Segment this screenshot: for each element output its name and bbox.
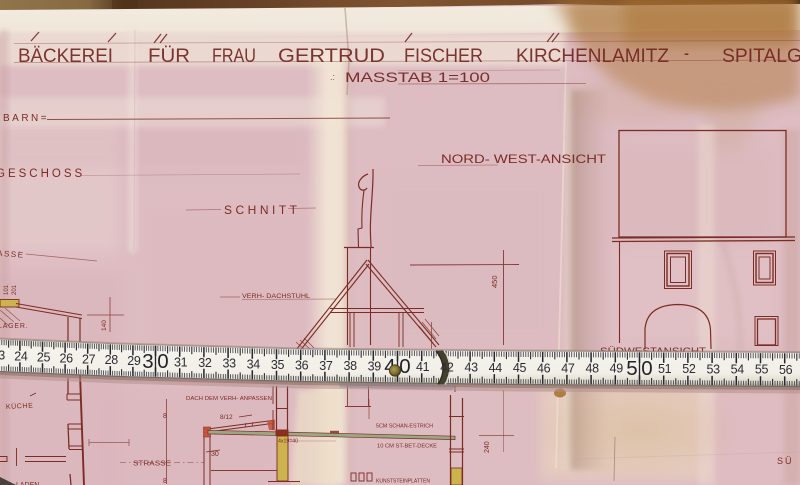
- svg-text:35: 35: [271, 358, 285, 372]
- svg-text:37: 37: [319, 359, 333, 373]
- svg-text:24: 24: [14, 350, 28, 364]
- svg-text:0: 0: [399, 355, 410, 378]
- svg-text:52: 52: [682, 362, 696, 376]
- svg-text:34: 34: [247, 357, 261, 371]
- svg-text:SPITALG: SPITALG: [722, 44, 800, 66]
- svg-text:8: 8: [163, 413, 167, 420]
- svg-text:47: 47: [561, 361, 575, 375]
- svg-text:36: 36: [295, 359, 309, 373]
- svg-text:8: 8: [163, 478, 167, 485]
- svg-text:MASSTAB 1=100: MASSTAB 1=100: [345, 70, 490, 85]
- svg-text:39: 39: [368, 360, 382, 374]
- svg-text:43: 43: [464, 361, 478, 375]
- svg-text:25: 25: [37, 350, 51, 364]
- svg-text:51: 51: [658, 362, 672, 376]
- svg-text:0: 0: [641, 357, 652, 380]
- svg-text:42: 42: [440, 360, 454, 374]
- svg-text:30: 30: [211, 451, 219, 458]
- svg-text:SÜ: SÜ: [777, 456, 794, 466]
- svg-text:45: 45: [513, 361, 527, 375]
- svg-text:56: 56: [779, 363, 793, 377]
- svg-text:46: 46: [537, 361, 551, 375]
- svg-text:10 CM ST-BET-DECKE: 10 CM ST-BET-DECKE: [377, 444, 437, 450]
- svg-text:29: 29: [127, 354, 141, 368]
- svg-text:33: 33: [222, 357, 236, 371]
- svg-text:38: 38: [343, 359, 357, 373]
- svg-text:0: 0: [157, 350, 168, 373]
- svg-text:44: 44: [489, 361, 503, 375]
- svg-text:ASSE: ASSE: [0, 249, 25, 260]
- svg-text:49: 49: [610, 362, 624, 376]
- svg-text:5: 5: [626, 357, 637, 380]
- svg-text:BARN=: BARN=: [3, 113, 49, 124]
- svg-text:KIRCHENLAMITZ: KIRCHENLAMITZ: [516, 44, 669, 66]
- svg-text:KÜCHE: KÜCHE: [6, 402, 34, 411]
- svg-text:GESCHOSS: GESCHOSS: [0, 168, 85, 180]
- svg-text:54: 54: [731, 363, 745, 377]
- svg-text:450: 450: [490, 275, 499, 288]
- svg-text:32: 32: [198, 356, 212, 370]
- svg-text:NORD- WEST-ANSICHT: NORD- WEST-ANSICHT: [441, 152, 607, 166]
- svg-text:240: 240: [484, 441, 491, 453]
- svg-text:55: 55: [755, 363, 769, 377]
- svg-text:5CM SCHAN-ESTRICH: 5CM SCHAN-ESTRICH: [376, 424, 433, 430]
- svg-text:48: 48: [585, 362, 599, 376]
- svg-text:140: 140: [101, 320, 108, 331]
- svg-text:4x19=40: 4x19=40: [278, 439, 298, 445]
- svg-text:BÄCKEREI: BÄCKEREI: [18, 44, 113, 66]
- svg-text:LAGER.: LAGER.: [0, 323, 28, 330]
- svg-text:FRAU: FRAU: [212, 44, 256, 66]
- svg-text:3: 3: [142, 350, 153, 373]
- svg-text:FÜR: FÜR: [148, 44, 190, 66]
- svg-text:23: 23: [0, 349, 5, 363]
- svg-text:201: 201: [12, 284, 18, 295]
- svg-text:26: 26: [59, 351, 73, 365]
- svg-text:FISCHER: FISCHER: [404, 44, 483, 66]
- svg-text:STRASSE: STRASSE: [133, 461, 171, 468]
- svg-text:41: 41: [416, 360, 430, 374]
- svg-text:27: 27: [82, 352, 96, 366]
- svg-text:SCHNITT: SCHNITT: [224, 203, 301, 217]
- svg-text:8/12: 8/12: [220, 414, 233, 421]
- svg-text:.:: .:: [330, 72, 335, 82]
- svg-text:101: 101: [4, 284, 10, 295]
- svg-text:31: 31: [174, 355, 188, 369]
- svg-text:53: 53: [706, 362, 720, 376]
- svg-text:GERTRUD: GERTRUD: [278, 44, 385, 66]
- svg-text:DACH DEM VERH- ANPASSEN: DACH DEM VERH- ANPASSEN: [186, 396, 272, 402]
- svg-text:KUNSTSTEINPLATTEN: KUNSTSTEINPLATTEN: [376, 479, 430, 485]
- svg-text:28: 28: [105, 353, 119, 367]
